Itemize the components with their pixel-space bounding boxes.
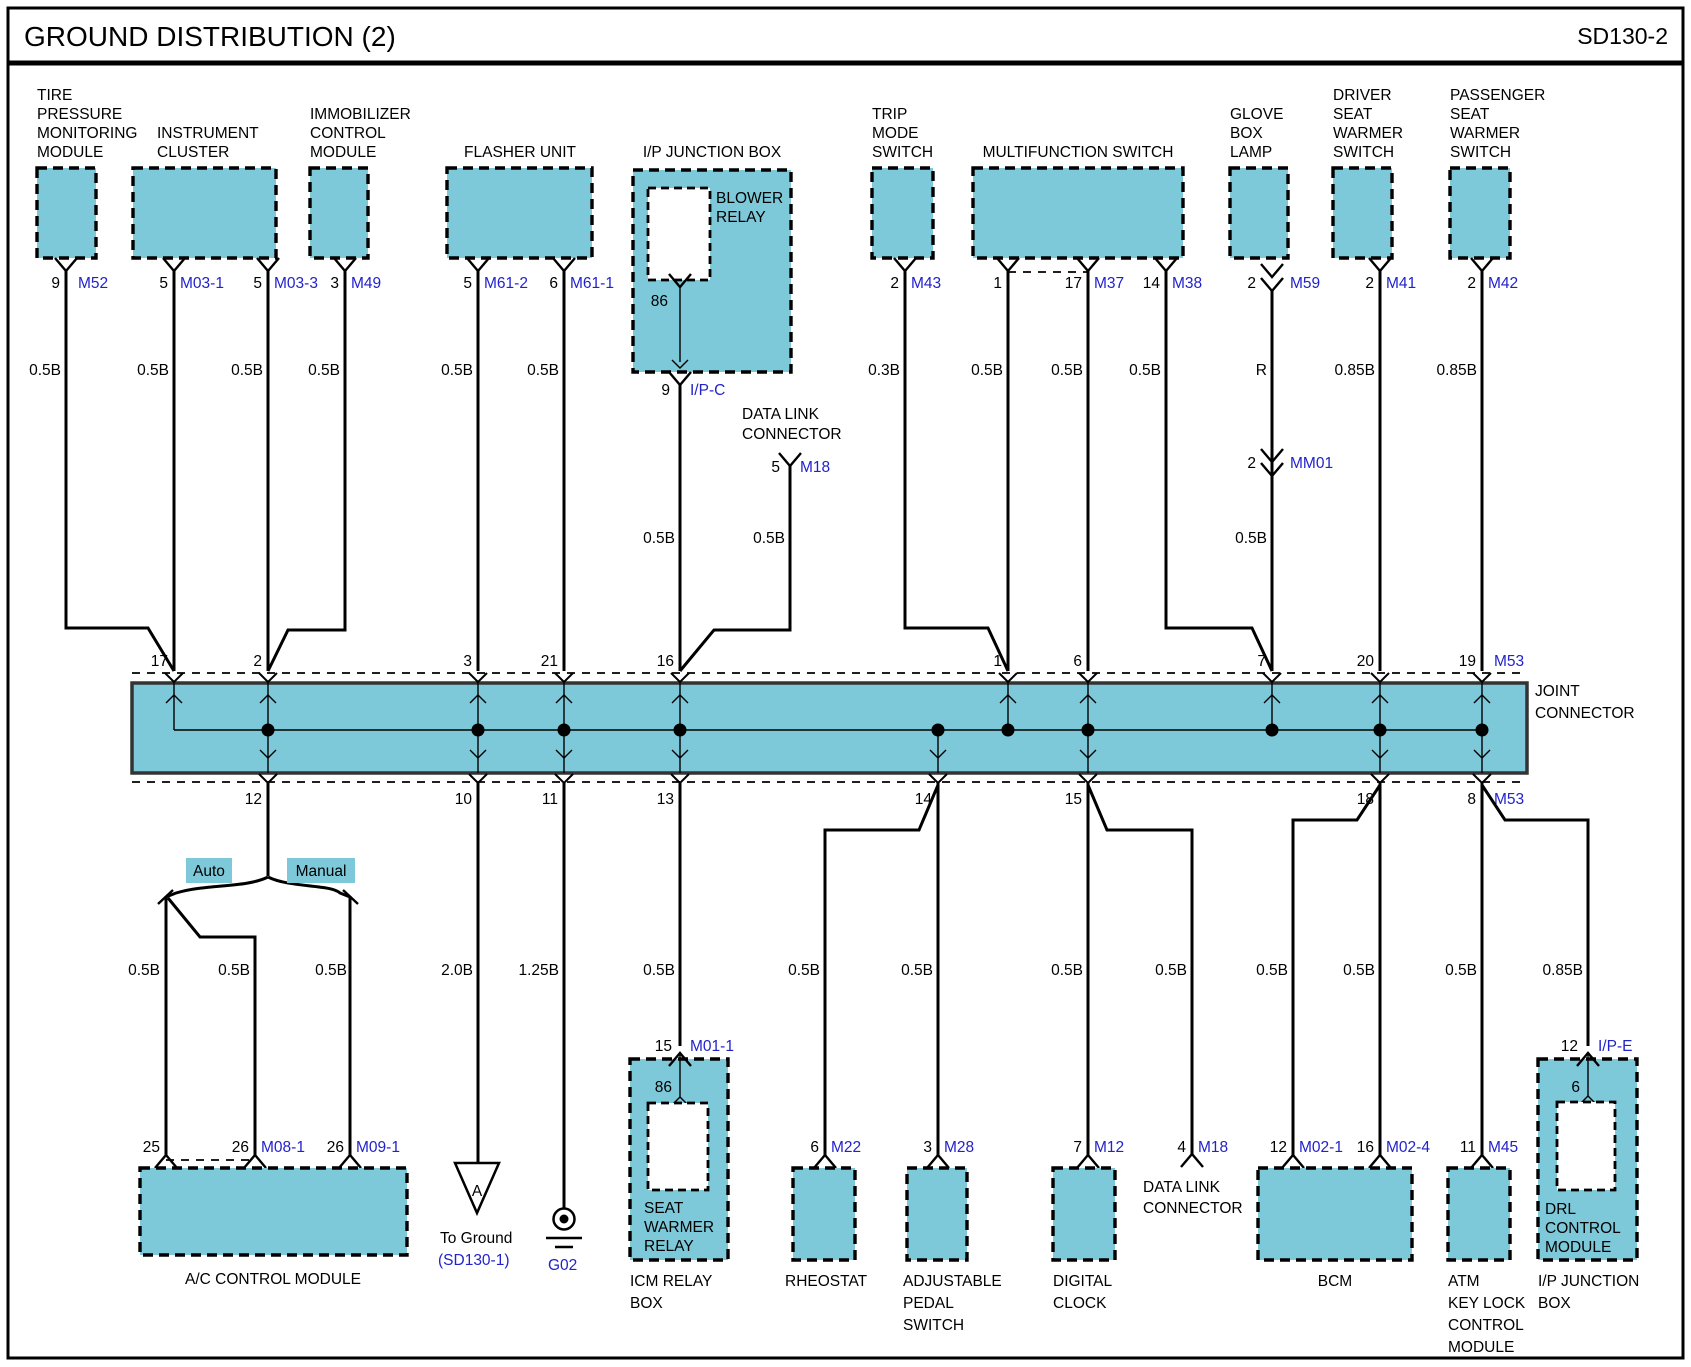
pin-number: 3 [330, 275, 339, 292]
pin-number: 5 [771, 459, 780, 476]
connector-chevron [669, 372, 691, 385]
connector-name: M45 [1488, 1139, 1518, 1156]
exit-arrow [1371, 774, 1389, 783]
trip-label: TRIP [872, 106, 907, 123]
bcm: 12 M02-1 16 M02-4 BCM [1258, 1139, 1430, 1290]
ip-junction-label: I/P JUNCTION BOX [643, 144, 782, 161]
junction-dot [674, 724, 687, 737]
connector-name: M37 [1094, 275, 1124, 292]
pin-number: 2 [890, 275, 899, 292]
blower-relay-box [648, 188, 710, 280]
blower-relay-label: BLOWER [716, 190, 783, 207]
pin-number: 11 [1460, 1139, 1476, 1156]
bcm-box [1258, 1168, 1412, 1260]
wire-label: 0.5B [643, 962, 675, 979]
relay-pin-86: 86 [655, 1079, 672, 1096]
adjustable-pedal-switch: 3 M28 ADJUSTABLE PEDAL SWITCH [903, 1139, 1002, 1334]
connector-name: M43 [911, 275, 941, 292]
page-code: SD130-2 [1577, 23, 1668, 49]
drl-module-box [1557, 1102, 1615, 1190]
glove-box [1230, 168, 1288, 258]
pin-number: 16 [1357, 1139, 1374, 1156]
connector-chevron [1155, 258, 1177, 271]
flasher-unit: FLASHER UNIT [447, 144, 592, 258]
glove-label: LAMP [1230, 144, 1272, 161]
junction-dot [1082, 724, 1095, 737]
entry-arrow [671, 673, 689, 682]
icm-label: ICM RELAY [630, 1273, 712, 1290]
connector-name: MM01 [1290, 455, 1333, 472]
multifunction-switch: MULTIFUNCTION SWITCH [973, 144, 1183, 272]
atm-key-lock-module: 11 M45 ATM KEY LOCK CONTROL MODULE [1448, 1139, 1526, 1356]
wire-label: 2.0B [441, 962, 473, 979]
dlc-bottom-label: DATA LINK [1143, 1179, 1221, 1196]
jc-pin: 8 [1467, 791, 1476, 808]
page-title: GROUND DISTRIBUTION (2) [24, 21, 396, 52]
entry-arrow [1371, 673, 1389, 682]
connector-chevron [1471, 1155, 1493, 1168]
pin-number: 26 [327, 1139, 344, 1156]
wire-label: 0.5B [441, 362, 473, 379]
jc-pin: 17 [151, 653, 168, 670]
seat-warmer-relay-label: WARMER [644, 1219, 714, 1236]
dsws-label: DRIVER [1333, 87, 1392, 104]
clock-label: DIGITAL [1053, 1273, 1113, 1290]
to-ground-label: To Ground [440, 1230, 512, 1247]
top-wire-labels: 0.5B 0.5B 0.5B 0.5B 0.5B 0.5B 0.3B 0.5B … [29, 362, 1477, 547]
rheostat-label: RHEOSTAT [785, 1273, 868, 1290]
entry-arrow [259, 673, 277, 682]
connector-chevron [1077, 258, 1099, 271]
connector-name: M38 [1172, 275, 1202, 292]
pin-number: 5 [253, 275, 262, 292]
tpms-label: MONITORING [37, 125, 137, 142]
connector-name: I/P-C [690, 382, 725, 399]
ground-a: A To Ground (SD130-1) [438, 1163, 512, 1269]
jc-connector-name: M53 [1494, 653, 1524, 670]
g02-dot [560, 1215, 569, 1224]
wire-label: 0.5B [1129, 362, 1161, 379]
jc-pin: 3 [463, 653, 472, 670]
instrument-cluster: INSTRUMENT CLUSTER [133, 125, 276, 258]
wire-label: 0.5B [315, 962, 347, 979]
wire-label: 0.5B [643, 530, 675, 547]
wire-label: 0.5B [753, 530, 785, 547]
jc-pin: 16 [657, 653, 674, 670]
wire-label: 0.85B [1436, 362, 1477, 379]
connector-name: M03-1 [180, 275, 224, 292]
ip-junction-bottom-label: BOX [1538, 1295, 1571, 1312]
ip-junction-box-top: I/P JUNCTION BOX BLOWER RELAY 86 [633, 144, 791, 372]
pin-number: 1 [993, 275, 1002, 292]
pin-number: 6 [810, 1139, 819, 1156]
connector-chevron [334, 258, 356, 271]
driver-seat-warmer-switch: DRIVER SEAT WARMER SWITCH [1333, 87, 1403, 258]
clock-box [1053, 1168, 1115, 1260]
connector-chevron [244, 1155, 266, 1168]
tpms-label: TIRE [37, 87, 72, 104]
tpms-label: MODULE [37, 144, 103, 161]
wire-m43 [905, 271, 1008, 671]
junction-dot [262, 724, 275, 737]
icm-relay-box: 15 M01-1 86 SEAT WARMER RELAY ICM RELAY … [630, 1038, 734, 1312]
jc-pin: 13 [657, 791, 674, 808]
wire-label: 0.5B [137, 362, 169, 379]
jc-pin: 20 [1357, 653, 1375, 670]
psws-label: SWITCH [1450, 144, 1511, 161]
wire-label: 0.5B [231, 362, 263, 379]
junction-dot [1002, 724, 1015, 737]
entry-arrow [1473, 673, 1491, 682]
connector-name: M03-3 [274, 275, 318, 292]
junction-dot [1266, 724, 1279, 737]
joint-connector-label: CONNECTOR [1535, 705, 1635, 722]
dlc-bottom-label: CONNECTOR [1143, 1200, 1243, 1217]
wire-label: 0.5B [218, 962, 250, 979]
drl-label: DRL [1545, 1201, 1576, 1218]
connector-chevron [927, 1155, 949, 1168]
dsws-label: SEAT [1333, 106, 1373, 123]
joint-connector-label: JOINT [1535, 683, 1580, 700]
pin-number: 25 [143, 1139, 160, 1156]
connector-name: M42 [1488, 275, 1518, 292]
connector-name: M18 [800, 459, 830, 476]
connector-chevron [814, 1155, 836, 1168]
ip-junction-box-bottom: 12 I/P-E 6 DRL CONTROL MODULE I/P JUNCTI… [1538, 1038, 1639, 1312]
junction-dot [1476, 724, 1489, 737]
pin-number: 26 [232, 1139, 249, 1156]
seat-warmer-relay-label: SEAT [644, 1200, 684, 1217]
wire-m38 [1166, 271, 1272, 671]
pin-number: 7 [1073, 1139, 1082, 1156]
connector-name: I/P-E [1598, 1038, 1632, 1055]
bcm-label: BCM [1318, 1273, 1352, 1290]
pin-number: 15 [655, 1038, 672, 1055]
jc-connector-name: M53 [1494, 791, 1524, 808]
wiring-diagram: GROUND DISTRIBUTION (2) SD130-2 TIRE PRE… [0, 0, 1691, 1367]
jc-pin: 2 [253, 653, 262, 670]
psws-label: PASSENGER [1450, 87, 1545, 104]
connector-chevron [257, 258, 279, 271]
drl-pin-6: 6 [1571, 1079, 1580, 1096]
pin-number: 9 [661, 382, 670, 399]
wire-label: 1.25B [518, 962, 559, 979]
pin-number: 2 [1365, 275, 1374, 292]
jc-pin: 1 [993, 653, 1002, 670]
connector-name: M18 [1198, 1139, 1228, 1156]
atm-label: MODULE [1448, 1339, 1514, 1356]
multifunction-label: MULTIFUNCTION SWITCH [983, 144, 1174, 161]
rheostat-box [793, 1168, 855, 1260]
jc-pin: 11 [542, 791, 558, 808]
connector-chevron [997, 258, 1019, 271]
dsws-label: SWITCH [1333, 144, 1394, 161]
relay-pin-86: 86 [651, 293, 668, 310]
connector-chevron [1471, 258, 1493, 271]
entry-arrow [1263, 673, 1281, 682]
junction-dot [472, 724, 485, 737]
ip-junction-bottom-label: I/P JUNCTION [1538, 1273, 1639, 1290]
dlc-top-label: DATA LINK [742, 406, 820, 423]
clock-label: CLOCK [1053, 1295, 1107, 1312]
pin-number: 5 [159, 275, 168, 292]
entry-arrow [555, 673, 573, 682]
connector-name: M59 [1290, 275, 1320, 292]
wire-label: 0.5B [1445, 962, 1477, 979]
psws-box [1450, 168, 1510, 258]
wire-label: 0.5B [527, 362, 559, 379]
connector-chevron [339, 1155, 361, 1168]
dlc-top-chevron [779, 453, 801, 466]
pedal-label: SWITCH [903, 1317, 964, 1334]
pin-number: 4 [1177, 1139, 1186, 1156]
wire-label: 0.5B [1051, 362, 1083, 379]
entry-arrow [999, 673, 1017, 682]
wire-label: 0.5B [1256, 962, 1288, 979]
drl-label: MODULE [1545, 1239, 1611, 1256]
wire-label: 0.5B [901, 962, 933, 979]
connector-chevron [155, 1155, 177, 1168]
cluster-label: INSTRUMENT [157, 125, 259, 142]
connector-chevron [1282, 1155, 1304, 1168]
jc-pin: 19 [1459, 653, 1476, 670]
entry-arrow [469, 673, 487, 682]
seat-warmer-relay-label: RELAY [644, 1238, 694, 1255]
connector-name: M41 [1386, 275, 1416, 292]
wire-ip-e [1482, 785, 1588, 1046]
cluster-box [133, 168, 276, 258]
tpms-box [37, 168, 96, 258]
connector-name: M61-2 [484, 275, 528, 292]
connector-chevron [55, 258, 77, 271]
jc-pin: 12 [245, 791, 262, 808]
tpms-module: TIRE PRESSURE MONITORING MODULE [37, 87, 137, 258]
double-chevron-m59 [1261, 278, 1283, 291]
junction-dot [932, 724, 945, 737]
immobilizer-box [310, 168, 368, 258]
joint-connector-band [132, 683, 1527, 773]
dsws-label: WARMER [1333, 125, 1403, 142]
cluster-label: CLUSTER [157, 144, 229, 161]
icm-label: BOX [630, 1295, 663, 1312]
double-chevron-m59 [1261, 264, 1283, 277]
wire-label: 0.5B [1155, 962, 1187, 979]
wire-label: 0.5B [788, 962, 820, 979]
pin-number: 12 [1561, 1038, 1578, 1055]
bottom-wire-labels: 0.5B 0.5B 0.5B 2.0B 1.25B 0.5B 0.5B 0.5B… [128, 962, 1583, 979]
glove-label: BOX [1230, 125, 1263, 142]
pin-number: 2 [1467, 275, 1476, 292]
jc-pin: 15 [1065, 791, 1082, 808]
connector-name: M02-4 [1386, 1139, 1430, 1156]
pin-number: 2 [1247, 275, 1256, 292]
digital-clock: 7 M12 DIGITAL CLOCK [1053, 1139, 1124, 1312]
pin-number: 2 [1247, 455, 1256, 472]
pin-number: 14 [1143, 275, 1161, 292]
joint-connector: 17 2 3 21 16 1 6 7 20 19 M53 12 10 11 13… [132, 653, 1635, 808]
connector-chevron [553, 258, 575, 271]
connector-chevron [163, 258, 185, 271]
pin-number: 3 [923, 1139, 932, 1156]
tpms-label: PRESSURE [37, 106, 122, 123]
wire-label: 0.5B [1343, 962, 1375, 979]
trip-box [872, 168, 933, 258]
branch-label-auto: Auto [193, 863, 225, 880]
ground-triangle-letter: A [472, 1183, 483, 1200]
wire-ac-26-m08 [168, 898, 255, 1155]
trip-label: SWITCH [872, 144, 933, 161]
connector-name: M49 [351, 275, 381, 292]
connector-chevron [467, 258, 489, 271]
connector-chevron [1077, 1155, 1099, 1168]
wire-label: 0.5B [971, 362, 1003, 379]
passenger-seat-warmer-switch: PASSENGER SEAT WARMER SWITCH [1450, 87, 1545, 258]
connector-name: M61-1 [570, 275, 614, 292]
atm-label: KEY LOCK [1448, 1295, 1526, 1312]
pedal-label: PEDAL [903, 1295, 954, 1312]
atm-box [1448, 1168, 1510, 1260]
g02-ground: G02 [546, 1209, 582, 1275]
connector-name: M52 [78, 275, 108, 292]
connector-name: M12 [1094, 1139, 1124, 1156]
connector-name: M22 [831, 1139, 861, 1156]
trip-mode-switch: TRIP MODE SWITCH [872, 106, 933, 258]
immobilizer-label: MODULE [310, 144, 376, 161]
pin-number: 9 [51, 275, 60, 292]
g02-label: G02 [548, 1257, 577, 1274]
ac-box [140, 1168, 407, 1255]
connector-name: M01-1 [690, 1038, 734, 1055]
glove-box-lamp: GLOVE BOX LAMP [1230, 106, 1288, 258]
multifunction-box [973, 168, 1183, 258]
psws-label: SEAT [1450, 106, 1490, 123]
blower-relay-label: RELAY [716, 209, 766, 226]
connector-chevron [1369, 258, 1391, 271]
ground-ref: (SD130-1) [438, 1252, 510, 1269]
psws-label: WARMER [1450, 125, 1520, 142]
wire-label: 0.5B [128, 962, 160, 979]
dsws-box [1333, 168, 1392, 258]
jc-pin: 6 [1073, 653, 1082, 670]
entry-arrow [1079, 673, 1097, 682]
connector-name: M28 [944, 1139, 974, 1156]
atm-label: ATM [1448, 1273, 1480, 1290]
trip-label: MODE [872, 125, 919, 142]
wire-label: 0.3B [868, 362, 900, 379]
pin-number: 5 [463, 275, 472, 292]
wire-label: 0.85B [1542, 962, 1583, 979]
rheostat: 6 M22 RHEOSTAT [785, 1139, 868, 1290]
immobilizer-module: IMMOBILIZER CONTROL MODULE [310, 106, 411, 258]
wire-m49 [268, 271, 345, 671]
pedal-box [907, 1168, 967, 1260]
pin-number: 12 [1270, 1139, 1287, 1156]
jc-pin: 10 [455, 791, 473, 808]
flasher-label: FLASHER UNIT [464, 144, 576, 161]
branch-label-manual: Manual [296, 863, 347, 880]
pin-number: 6 [549, 275, 558, 292]
wire-label: 0.5B [308, 362, 340, 379]
connector-name: M02-1 [1299, 1139, 1343, 1156]
atm-label: CONTROL [1448, 1317, 1524, 1334]
jc-pin: 7 [1257, 653, 1266, 670]
wire-label: 0.5B [1235, 530, 1267, 547]
pedal-label: ADJUSTABLE [903, 1273, 1002, 1290]
pin-number: 17 [1065, 275, 1082, 292]
wire-label: 0.5B [29, 362, 61, 379]
jc-pin: 21 [541, 653, 558, 670]
wire-label: 0.85B [1334, 362, 1375, 379]
connector-name: M09-1 [356, 1139, 400, 1156]
seat-warmer-relay-box [648, 1103, 708, 1190]
wire-label: 0.5B [1051, 962, 1083, 979]
dlc-top-label: CONNECTOR [742, 426, 842, 443]
flasher-box [447, 168, 592, 258]
junction-dot [558, 724, 571, 737]
connector-name: M08-1 [261, 1139, 305, 1156]
wire-label: R [1256, 362, 1267, 379]
immobilizer-label: IMMOBILIZER [310, 106, 411, 123]
ac-control-module: 25 26 M08-1 26 M09-1 A/C CONTROL MODULE [140, 1139, 407, 1288]
ac-label: A/C CONTROL MODULE [185, 1271, 361, 1288]
entry-arrow [165, 673, 183, 682]
connector-chevron [894, 258, 916, 271]
wire-m18-top [680, 466, 790, 671]
glove-label: GLOVE [1230, 106, 1283, 123]
junction-dot [1374, 724, 1387, 737]
wire-m52 [66, 271, 174, 671]
connector-chevron [1369, 1155, 1391, 1168]
drl-label: CONTROL [1545, 1220, 1621, 1237]
immobilizer-label: CONTROL [310, 125, 386, 142]
